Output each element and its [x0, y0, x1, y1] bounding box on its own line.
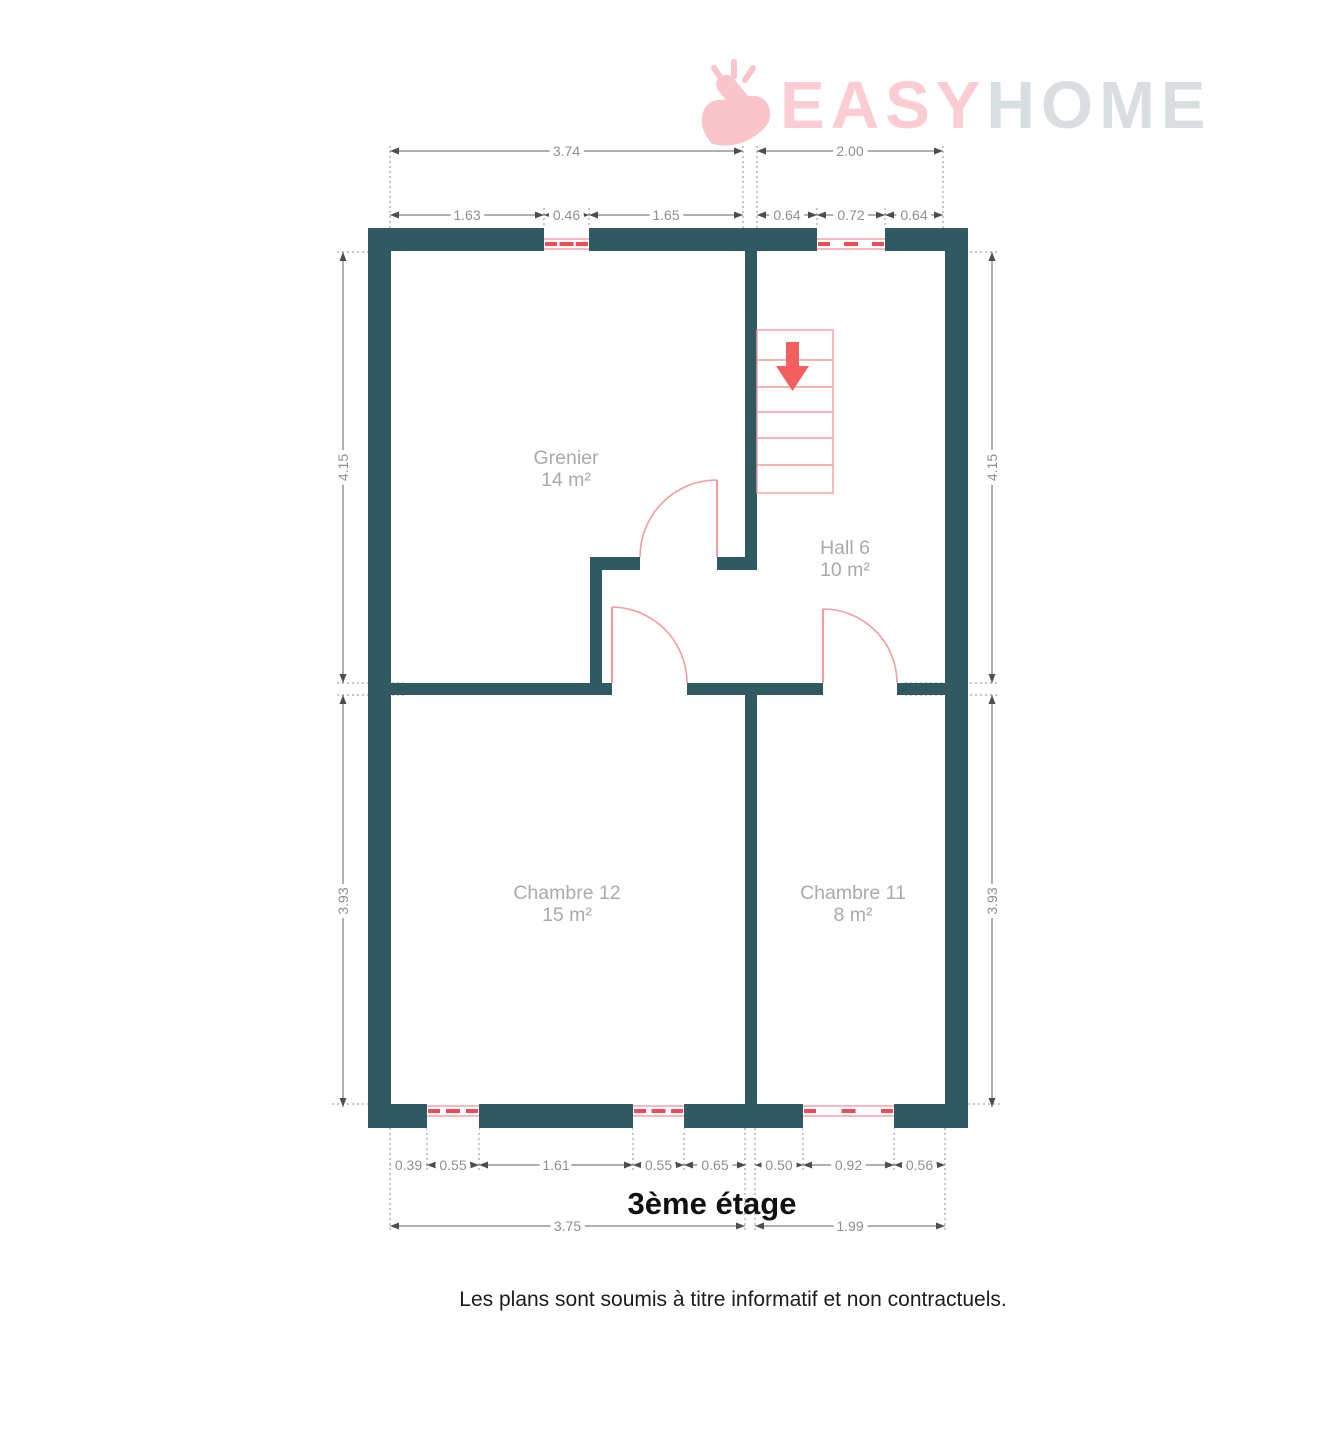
- dimension-label: 3.75: [554, 1218, 581, 1234]
- dimension-arrow: [535, 212, 544, 219]
- dimension-arrow: [470, 1162, 479, 1169]
- dimension-arrow: [737, 1162, 746, 1169]
- dimension-arrow: [340, 674, 347, 683]
- dimension-arrow: [580, 212, 589, 219]
- wall: [391, 683, 612, 695]
- dimension-arrow: [624, 1162, 633, 1169]
- dimension-arrow: [755, 1223, 764, 1230]
- dimension-arrow: [885, 1162, 894, 1169]
- dimension-label: 1.99: [836, 1218, 863, 1234]
- dimension-label: 4.15: [335, 454, 351, 481]
- dimension-arrow: [544, 212, 553, 219]
- room-label: Hall 610 m²: [820, 537, 870, 581]
- dimension-label: 1.63: [453, 207, 480, 223]
- dimension-arrow: [989, 1098, 996, 1107]
- dimension-arrow: [736, 1223, 745, 1230]
- dimension-arrow: [675, 1162, 684, 1169]
- dimension-label: 0.55: [645, 1157, 672, 1173]
- dimension-arrow: [755, 1162, 764, 1169]
- wall: [745, 695, 757, 1104]
- dimension-arrow: [876, 212, 885, 219]
- dimension-arrow: [340, 1098, 347, 1107]
- door-swing-arc: [612, 607, 687, 683]
- dimension-label: 0.56: [906, 1157, 933, 1173]
- room-label: Grenier14 m²: [533, 447, 599, 491]
- dimension-arrow: [390, 212, 399, 219]
- dimension-arrow: [989, 252, 996, 261]
- floor-title: 3ème étage: [628, 1186, 797, 1222]
- dimension-label: 0.72: [837, 207, 864, 223]
- dimension-arrow: [734, 148, 743, 155]
- dimension-label: 0.46: [553, 207, 580, 223]
- dimension-label: 0.64: [773, 207, 800, 223]
- dimension-arrow: [757, 148, 766, 155]
- dimension-arrow: [390, 148, 399, 155]
- door-swing-arc: [640, 480, 717, 557]
- wall: [897, 683, 945, 695]
- dimension-label: 3.74: [553, 143, 580, 159]
- dimension-arrow: [817, 212, 826, 219]
- room-label: Chambre 118 m²: [800, 882, 906, 926]
- dimension-label: 4.15: [984, 454, 1000, 481]
- floor-plan-drawing: 3.742.001.630.461.650.640.720.640.390.55…: [0, 0, 1335, 1440]
- wall: [368, 228, 391, 1128]
- dimension-arrow: [936, 1162, 945, 1169]
- dimension-arrow: [757, 212, 766, 219]
- wall: [687, 683, 823, 695]
- wall: [590, 570, 602, 683]
- dimension-arrow: [734, 212, 743, 219]
- dimension-arrow: [390, 1223, 399, 1230]
- dimension-label: 2.00: [836, 143, 863, 159]
- dimension-arrow: [340, 695, 347, 704]
- door-swing-arc: [823, 609, 897, 683]
- wall: [945, 228, 968, 1128]
- dimension-arrow: [589, 212, 598, 219]
- dimension-arrow: [633, 1162, 642, 1169]
- stairs-down-arrow: [786, 342, 799, 368]
- dimension-arrow: [894, 1162, 903, 1169]
- floorplan-page: EASYHOME 3.742.001.630.461.650.640.720.6…: [0, 0, 1335, 1440]
- dimension-label: 0.64: [900, 207, 927, 223]
- disclaimer-text: Les plans sont soumis à titre informatif…: [459, 1288, 1006, 1312]
- dimension-arrow: [340, 252, 347, 261]
- dimension-arrow: [794, 1162, 803, 1169]
- dimension-label: 3.93: [335, 887, 351, 914]
- dimension-arrow: [479, 1162, 488, 1169]
- wall: [717, 557, 757, 570]
- dimension-arrow: [808, 212, 817, 219]
- wall: [745, 251, 757, 570]
- dimension-label: 1.65: [652, 207, 679, 223]
- dimension-arrow: [934, 212, 943, 219]
- dimension-label: 0.39: [395, 1157, 422, 1173]
- dimension-arrow: [989, 695, 996, 704]
- dimension-arrow: [989, 674, 996, 683]
- dimension-label: 3.93: [984, 887, 1000, 914]
- dimension-arrow: [803, 1162, 812, 1169]
- room-label: Chambre 1215 m²: [513, 882, 620, 926]
- dimension-label: 1.61: [542, 1157, 569, 1173]
- dimension-arrow: [934, 148, 943, 155]
- dimension-arrow: [684, 1162, 693, 1169]
- wall: [590, 557, 640, 570]
- dimension-label: 0.92: [835, 1157, 862, 1173]
- dimension-label: 0.50: [765, 1157, 792, 1173]
- dimension-label: 0.65: [701, 1157, 728, 1173]
- dimension-arrow: [885, 212, 894, 219]
- dimension-arrow: [936, 1223, 945, 1230]
- dimension-label: 0.55: [439, 1157, 466, 1173]
- dimension-arrow: [427, 1162, 436, 1169]
